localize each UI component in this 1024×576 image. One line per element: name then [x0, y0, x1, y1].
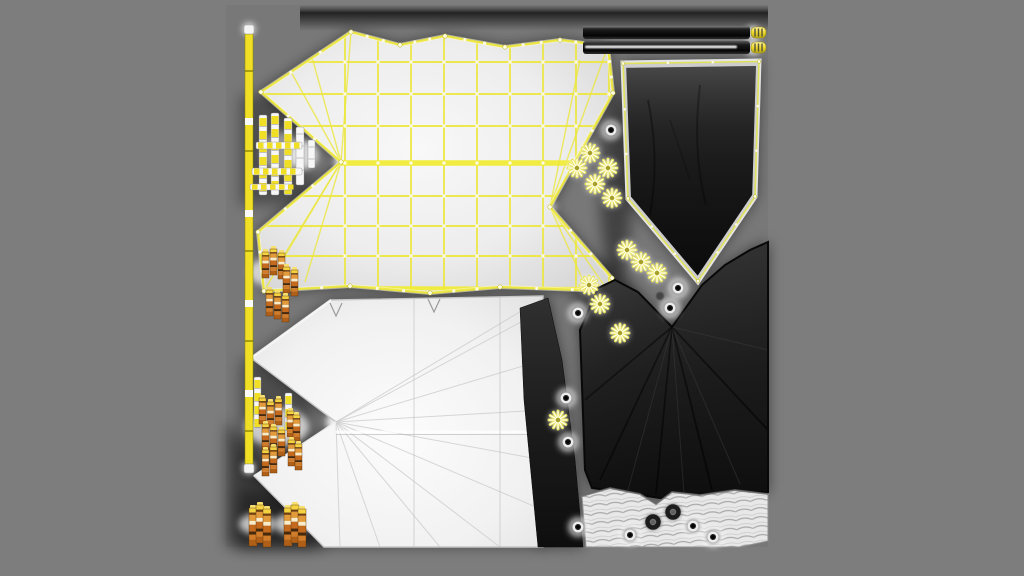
texture-atlas-stage [0, 0, 1024, 576]
texture-atlas-image [0, 0, 1024, 576]
